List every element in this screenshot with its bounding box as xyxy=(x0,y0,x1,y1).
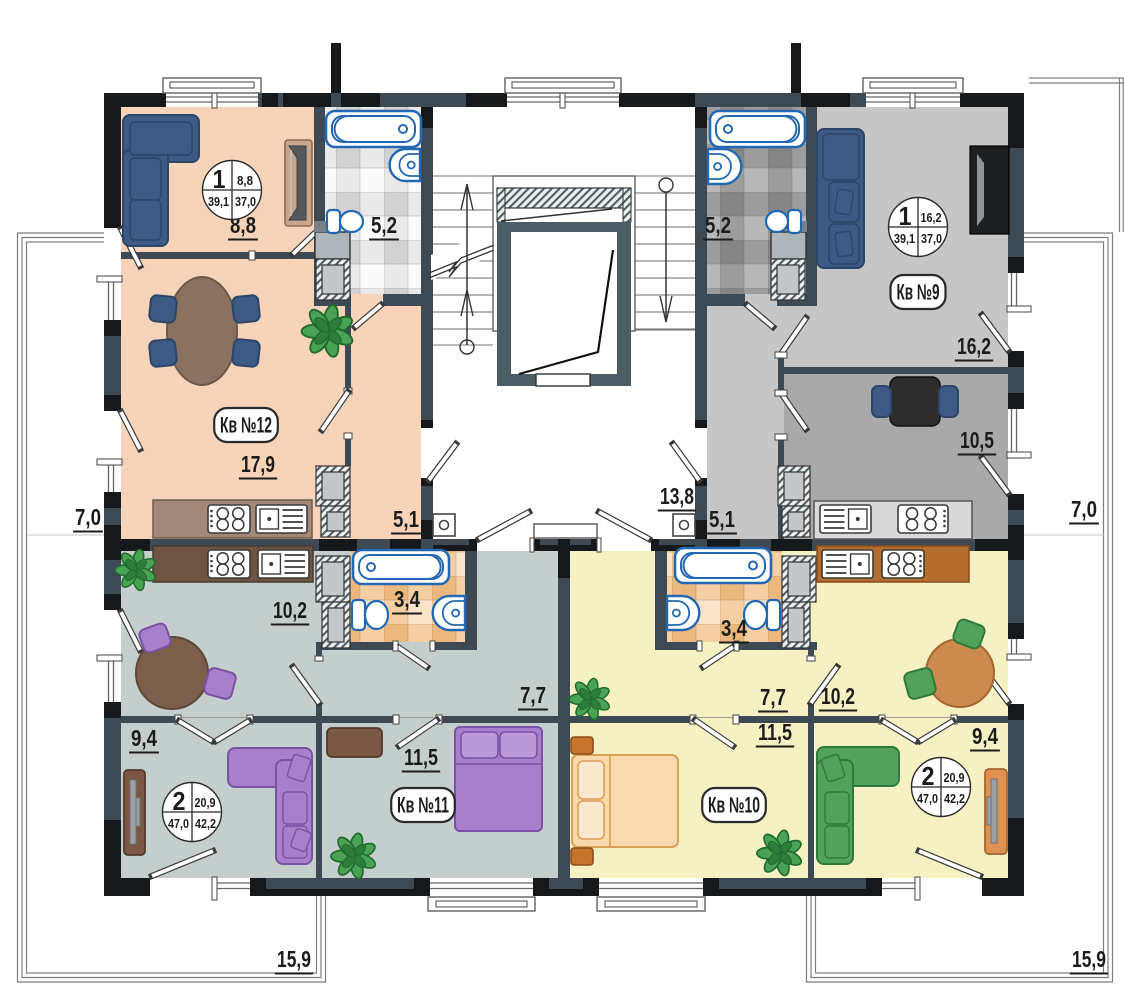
svg-text:5,1: 5,1 xyxy=(393,506,419,532)
svg-text:7,7: 7,7 xyxy=(760,684,786,710)
svg-text:39,1: 39,1 xyxy=(894,232,915,246)
svg-text:7,0: 7,0 xyxy=(75,504,101,530)
svg-text:13,8: 13,8 xyxy=(660,483,694,509)
svg-text:10,5: 10,5 xyxy=(960,427,994,453)
svg-text:11,5: 11,5 xyxy=(758,719,792,745)
svg-text:1: 1 xyxy=(213,164,226,194)
svg-text:17,9: 17,9 xyxy=(241,451,275,477)
svg-text:10,2: 10,2 xyxy=(821,683,855,709)
svg-text:37,0: 37,0 xyxy=(921,232,942,246)
svg-text:11,5: 11,5 xyxy=(404,744,438,770)
svg-text:10,2: 10,2 xyxy=(273,597,307,623)
svg-text:42,2: 42,2 xyxy=(195,817,216,831)
svg-text:16,2: 16,2 xyxy=(921,211,942,225)
svg-text:Кв №12: Кв №12 xyxy=(220,413,272,438)
svg-text:1: 1 xyxy=(899,201,912,231)
svg-text:3,4: 3,4 xyxy=(721,615,747,641)
svg-text:37,0: 37,0 xyxy=(235,195,256,209)
svg-text:9,4: 9,4 xyxy=(131,725,157,751)
svg-text:7,7: 7,7 xyxy=(520,682,546,708)
svg-text:9,4: 9,4 xyxy=(972,723,998,749)
svg-text:2: 2 xyxy=(173,786,186,816)
svg-text:Кв №11: Кв №11 xyxy=(397,793,449,818)
svg-text:8,8: 8,8 xyxy=(237,174,253,188)
svg-text:5,2: 5,2 xyxy=(705,212,731,238)
svg-text:20,9: 20,9 xyxy=(195,796,216,810)
svg-text:47,0: 47,0 xyxy=(168,817,189,831)
svg-text:20,9: 20,9 xyxy=(944,771,965,785)
svg-text:5,1: 5,1 xyxy=(709,506,735,532)
svg-text:2: 2 xyxy=(922,761,935,791)
svg-text:15,9: 15,9 xyxy=(1072,946,1106,972)
svg-text:16,2: 16,2 xyxy=(957,333,991,359)
svg-text:3,4: 3,4 xyxy=(394,586,420,612)
svg-text:42,2: 42,2 xyxy=(944,792,965,806)
svg-text:47,0: 47,0 xyxy=(917,792,938,806)
svg-text:15,9: 15,9 xyxy=(277,946,311,972)
svg-text:Кв №9: Кв №9 xyxy=(897,280,940,305)
svg-text:5,2: 5,2 xyxy=(371,212,397,238)
svg-text:39,1: 39,1 xyxy=(208,195,229,209)
svg-text:7,0: 7,0 xyxy=(1071,496,1097,522)
svg-text:Кв №10: Кв №10 xyxy=(708,793,760,818)
